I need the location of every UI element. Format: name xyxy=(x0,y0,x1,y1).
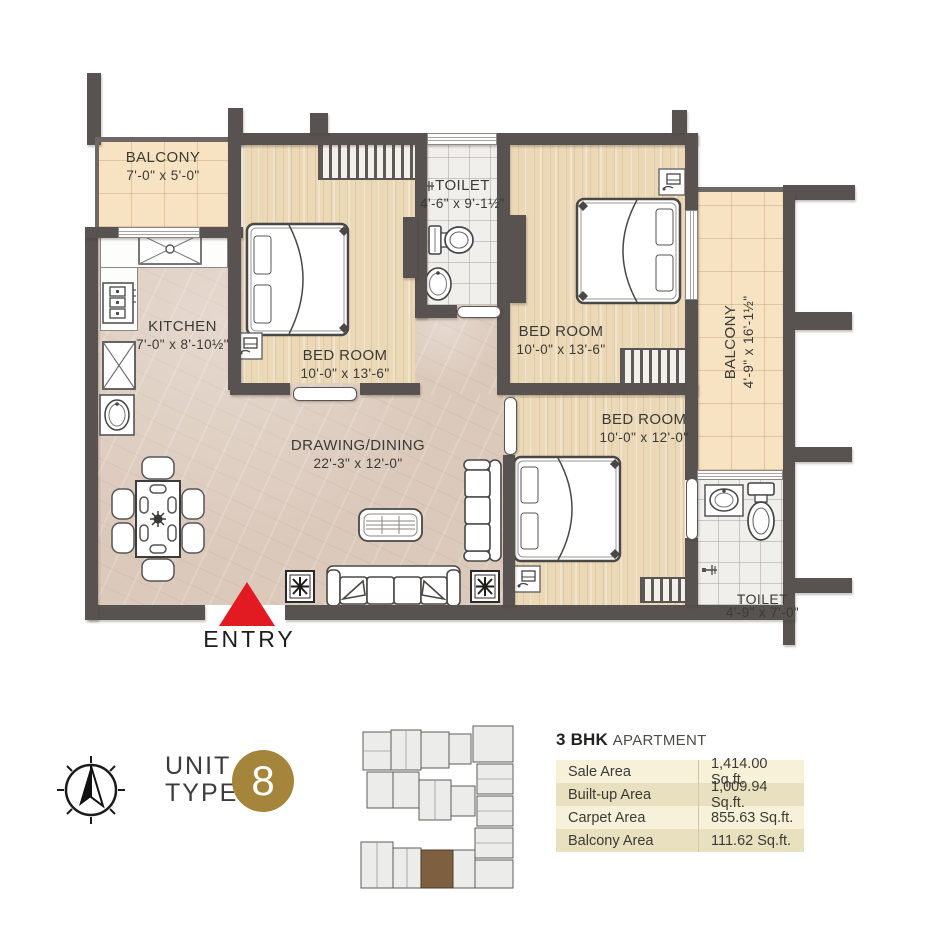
room-name: KITCHEN xyxy=(115,317,250,336)
wall xyxy=(88,605,205,620)
area-label: Built-up Area xyxy=(556,787,698,803)
apartment-type-bold: 3 BHK xyxy=(556,730,608,749)
room-label-toilet1: TOILET 4'-6" x 9'-1½" xyxy=(405,176,520,212)
side-sofa-icon xyxy=(462,458,503,563)
wall xyxy=(415,305,457,318)
door xyxy=(504,397,517,455)
floor-plan: BALCONY 7'-0" x 5'-0" KITCHEN 7'-0" x 8'… xyxy=(85,60,855,655)
room-name: DRAWING/DINING xyxy=(268,436,448,455)
floor-mat-icon xyxy=(470,570,500,603)
room-label-drawing-dining: DRAWING/DINING 22'-3" x 12'-0" xyxy=(268,436,448,472)
building-key-plan xyxy=(357,722,522,894)
door xyxy=(293,387,357,401)
room-label-balcony-top: BALCONY 7'-0" x 5'-0" xyxy=(98,148,228,184)
entry-label: ENTRY xyxy=(192,626,307,653)
area-value: 855.63 Sq.ft. xyxy=(698,806,804,829)
unit-number: 8 xyxy=(251,757,274,805)
wc-icon xyxy=(428,220,474,260)
room-label-bedroom2: BED ROOM 10'-0" x 13'-6" xyxy=(485,322,637,358)
area-label: Sale Area xyxy=(556,764,698,780)
wall xyxy=(85,227,98,620)
unit-number-badge: 8 xyxy=(232,750,294,812)
wall xyxy=(360,383,420,395)
room-dims: 22'-3" x 12'-0" xyxy=(268,455,448,472)
dining-table-icon xyxy=(110,453,206,585)
area-table: Sale Area 1,414.00 Sq.ft. Built-up Area … xyxy=(556,760,804,852)
balcony-railing xyxy=(698,187,790,192)
room-name: TOILET xyxy=(690,592,835,606)
apartment-info: 3 BHK APARTMENT Sale Area 1,414.00 Sq.ft… xyxy=(556,730,804,852)
room-name: BALCONY xyxy=(721,267,740,417)
shower-tap-icon xyxy=(701,562,719,578)
room-name: BED ROOM xyxy=(485,322,637,341)
wall xyxy=(795,447,852,462)
window xyxy=(427,133,497,145)
wash-basin-icon xyxy=(423,266,453,302)
dresser-icon xyxy=(513,565,541,593)
area-label: Carpet Area xyxy=(556,810,698,826)
room-label-balcony-right: BALCONY 4'-9" x 16'-1½" xyxy=(721,267,759,417)
unit-type-line1: UNIT xyxy=(165,753,238,780)
room-dims: 10'-0" x 13'-6" xyxy=(270,365,420,382)
wall xyxy=(795,312,852,330)
room-label-bedroom1: BED ROOM 10'-0" x 13'-6" xyxy=(270,346,420,382)
floor-plan-page: BALCONY 7'-0" x 5'-0" KITCHEN 7'-0" x 8'… xyxy=(0,0,930,932)
room-dims: 7'-0" x 5'-0" xyxy=(98,167,228,184)
table-row: Built-up Area 1,009.94 Sq.ft. xyxy=(556,783,804,806)
room-dims: 7'-0" x 8'-10½" xyxy=(115,336,250,353)
wall xyxy=(783,192,795,645)
bed-icon xyxy=(245,222,350,337)
window xyxy=(118,227,200,238)
room-dims: 10'-0" x 13'-6" xyxy=(485,341,637,358)
wall xyxy=(510,383,698,395)
bed-icon xyxy=(512,455,622,563)
window xyxy=(685,210,698,300)
wall-niche xyxy=(403,217,417,278)
desk-icon xyxy=(658,168,686,196)
bed-icon xyxy=(575,197,682,305)
wall xyxy=(310,113,328,133)
area-label: Balcony Area xyxy=(556,833,698,849)
floor-mat-icon xyxy=(285,570,315,603)
wall xyxy=(503,455,515,605)
room-dims: 4'-9" x 7'-0" xyxy=(690,606,835,620)
room-dims: 4'-6" x 9'-1½" xyxy=(405,195,520,212)
wall xyxy=(795,578,852,593)
door xyxy=(457,306,501,318)
wardrobe xyxy=(318,143,420,180)
room-label-kitchen: KITCHEN 7'-0" x 8'-10½" xyxy=(115,317,250,353)
table-row: Carpet Area 855.63 Sq.ft. xyxy=(556,806,804,829)
balcony-railing xyxy=(95,137,231,142)
window xyxy=(697,470,783,480)
room-label-bedroom3: BED ROOM 10'-0" x 12'-0" xyxy=(563,410,725,446)
room-name: BED ROOM xyxy=(270,346,420,365)
wall-niche xyxy=(510,215,526,303)
door xyxy=(686,478,698,540)
north-compass-icon xyxy=(52,750,130,830)
wash-basin-icon xyxy=(704,484,744,517)
area-value: 111.62 Sq.ft. xyxy=(698,829,804,852)
wall xyxy=(230,383,290,395)
room-name: TOILET xyxy=(405,176,520,195)
entry-arrow xyxy=(219,582,275,626)
area-value: 1,009.94 Sq.ft. xyxy=(698,783,804,806)
unit-type-line2: TYPE xyxy=(165,780,238,807)
room-name: BED ROOM xyxy=(563,410,725,429)
wall xyxy=(672,110,687,133)
room-dims: 4'-9" x 16'-1½" xyxy=(740,267,757,417)
unit-type-label: UNIT TYPE xyxy=(165,753,238,807)
coffee-table-icon xyxy=(358,508,423,542)
highlighted-unit xyxy=(421,850,453,888)
room-label-toilet2: TOILET 4'-9" x 7'-0" xyxy=(690,592,835,620)
wc-icon xyxy=(745,482,777,546)
sofa-icon xyxy=(325,565,462,609)
apartment-type-light: APARTMENT xyxy=(613,732,707,749)
room-dims: 10'-0" x 12'-0" xyxy=(563,429,725,446)
room-name: BALCONY xyxy=(98,148,228,167)
table-row: Balcony Area 111.62 Sq.ft. xyxy=(556,829,804,852)
wash-basin-icon xyxy=(99,394,135,436)
wall xyxy=(87,73,101,145)
apartment-type-title: 3 BHK APARTMENT xyxy=(556,730,804,750)
